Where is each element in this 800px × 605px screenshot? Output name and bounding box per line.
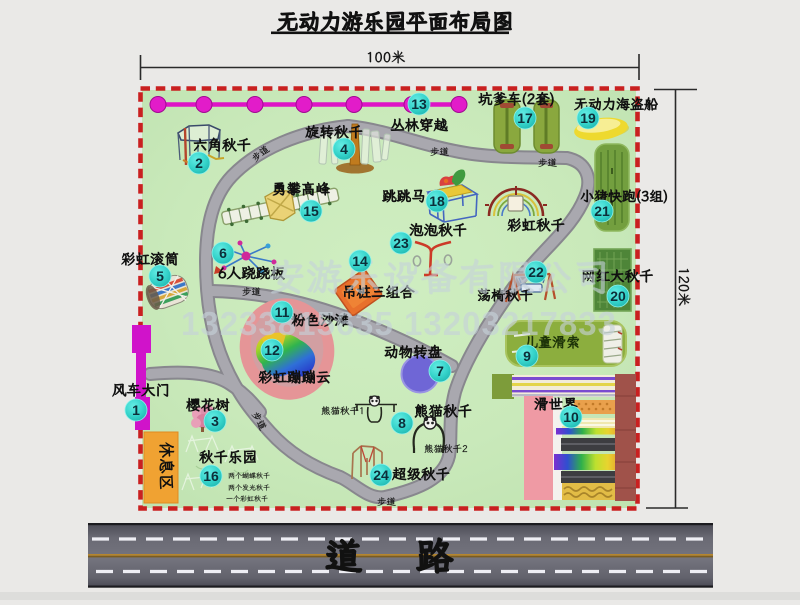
svg-text:14: 14: [352, 253, 368, 269]
svg-text:2: 2: [195, 155, 203, 171]
svg-text:23: 23: [393, 235, 409, 251]
svg-text:16: 16: [203, 468, 219, 484]
svg-text:17: 17: [517, 110, 533, 126]
svg-text:21: 21: [594, 203, 610, 219]
svg-text:13: 13: [411, 96, 427, 112]
svg-text:12: 12: [264, 342, 280, 358]
svg-text:10: 10: [563, 409, 579, 425]
svg-text:19: 19: [580, 110, 596, 126]
svg-text:20: 20: [610, 288, 626, 304]
svg-text:1: 1: [132, 402, 140, 418]
svg-text:3: 3: [211, 413, 219, 429]
svg-text:8: 8: [398, 415, 406, 431]
svg-text:6: 6: [219, 245, 227, 261]
svg-text:9: 9: [523, 348, 531, 364]
svg-text:7: 7: [436, 363, 444, 379]
svg-text:11: 11: [275, 304, 290, 320]
svg-text:24: 24: [373, 467, 389, 483]
svg-text:22: 22: [528, 264, 544, 280]
svg-text:18: 18: [429, 193, 445, 209]
svg-text:5: 5: [156, 268, 164, 284]
svg-text:15: 15: [303, 203, 319, 219]
svg-text:4: 4: [340, 141, 348, 157]
svg-text:13233815635 13203217833: 13233815635 13203217833: [181, 305, 617, 342]
